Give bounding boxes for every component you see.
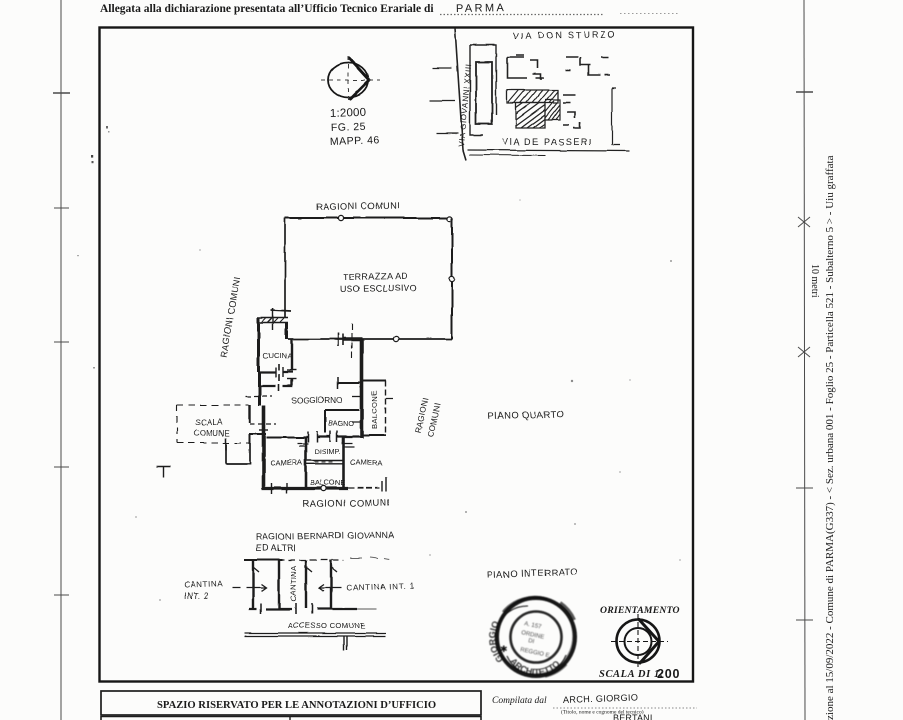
svg-text:VIA DE PASSERI: VIA DE PASSERI: [502, 137, 593, 147]
svg-text:BALCONE: BALCONE: [310, 478, 345, 487]
svg-text:DI: DI: [528, 638, 535, 645]
svg-text:A. 157: A. 157: [524, 621, 543, 631]
svg-text:CAMERA: CAMERA: [270, 458, 303, 467]
svg-text:BAGNO: BAGNO: [328, 419, 354, 428]
svg-text:FG. 25: FG. 25: [331, 121, 367, 134]
svg-text:RAGIONI BERNARDI GIOVANNA: RAGIONI BERNARDI GIOVANNA: [256, 530, 394, 542]
svg-text:CAMERA: CAMERA: [350, 458, 383, 467]
svg-text:BALCONE: BALCONE: [370, 391, 379, 429]
svg-text:MAPP. 46: MAPP. 46: [330, 134, 380, 148]
svg-text:✱: ✱: [500, 644, 508, 654]
svg-text:ARCH. GIORGIO: ARCH. GIORGIO: [563, 692, 639, 705]
svg-text:PIANO QUARTO: PIANO QUARTO: [488, 408, 565, 421]
svg-text:SPAZIO RISERVATO PER LE ANNOTA: SPAZIO RISERVATO PER LE ANNOTAZIONI D’UF…: [157, 700, 436, 711]
svg-text:RAGIONI COMUNI: RAGIONI COMUNI: [316, 201, 400, 212]
svg-text:CANTINA: CANTINA: [184, 580, 224, 590]
svg-text:ORIENTAMENTO: ORIENTAMENTO: [600, 605, 680, 616]
svg-text:RAGIONI COMUNI: RAGIONI COMUNI: [303, 496, 390, 509]
svg-text:200: 200: [657, 667, 680, 681]
svg-text:PARMA: PARMA: [456, 2, 507, 15]
svg-text:VIA DON STURZO: VIA DON STURZO: [513, 29, 617, 41]
svg-text:PIANO INTERRATO: PIANO INTERRATO: [487, 566, 578, 580]
svg-text:DISIMP.: DISIMP.: [314, 447, 341, 456]
svg-text:10 metri: 10 metri: [809, 264, 820, 298]
svg-text:ED ALTRI: ED ALTRI: [256, 543, 296, 553]
svg-text:1:2000: 1:2000: [330, 107, 367, 120]
svg-text:BERTANI: BERTANI: [613, 713, 653, 720]
svg-text:INT. 2: INT. 2: [184, 592, 209, 601]
svg-text:SCALA: SCALA: [195, 418, 223, 427]
svg-text:CANTINA: CANTINA: [289, 565, 298, 601]
svg-text:zione al 15/09/2022 - Comune d: zione al 15/09/2022 - Comune di PARMA(G3…: [824, 155, 836, 720]
svg-text:COMUNE: COMUNE: [194, 429, 230, 438]
svg-text:REGGIO E.: REGGIO E.: [520, 647, 552, 659]
svg-text:TERRAZZA AD: TERRAZZA AD: [343, 271, 408, 282]
svg-text:Allegata alla dichiarazione pr: Allegata alla dichiarazione presentata a…: [100, 3, 434, 15]
svg-text:CUCINA: CUCINA: [263, 351, 293, 360]
svg-text:USO ESCLUSIVO: USO ESCLUSIVO: [340, 283, 418, 294]
svg-text:ACCESSO COMUNE: ACCESSO COMUNE: [288, 621, 365, 630]
svg-text:Compilata dal: Compilata dal: [492, 696, 547, 706]
svg-text:RAGIONI COMUNI: RAGIONI COMUNI: [218, 275, 242, 358]
svg-text:SOGGIORNO: SOGGIORNO: [291, 396, 342, 405]
svg-text:CANTINA INT. 1: CANTINA INT. 1: [346, 582, 415, 593]
